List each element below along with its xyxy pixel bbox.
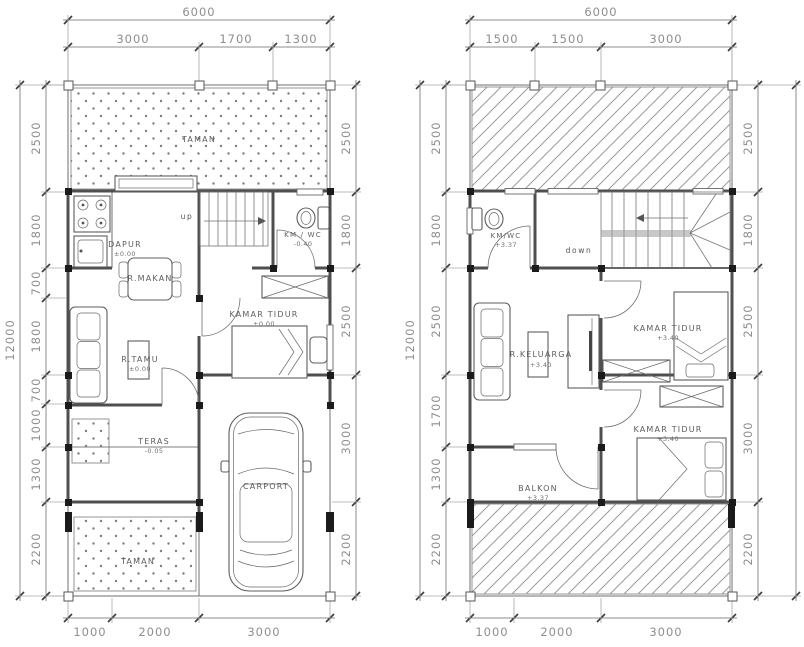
f1-wardrobe xyxy=(262,276,328,298)
f2-level-kmwc: +3.37 xyxy=(495,241,517,249)
f2-level-rkeluarga: +3.40 xyxy=(530,361,552,369)
floorplan-page: 6000 3000 1700 1300 12000 2500 1800 700 … xyxy=(0,0,804,647)
f2-dim-right-seg4: 2200 xyxy=(741,532,755,565)
f2-dim-top-seg0: 1500 xyxy=(485,32,518,46)
f2-bed-2 xyxy=(637,438,726,500)
f2-dim-bottom-seg0: 1000 xyxy=(475,625,508,639)
f1-stairs xyxy=(200,192,268,246)
f1-sofa xyxy=(70,307,107,403)
f2-dim-bottom-seg2: 3000 xyxy=(649,625,682,639)
f1-dim-right-seg2: 2500 xyxy=(339,304,353,337)
f2-closet xyxy=(568,315,599,388)
car-icon xyxy=(221,413,311,591)
f1-level-rtamu: ±0.00 xyxy=(129,365,151,373)
f1-dim-left-seg4: 700 xyxy=(29,378,43,403)
f1-dim-left-seg5: 1000 xyxy=(29,408,43,441)
f2-toilet-icon xyxy=(472,208,503,230)
f1-dim-right-seg3: 3000 xyxy=(339,421,353,454)
f2-dim-right-seg0: 2500 xyxy=(741,121,755,154)
f2-level-kamartidur2: +3.40 xyxy=(657,435,679,443)
f1-teras-planter xyxy=(72,419,109,463)
f2-level-balkon: +3.37 xyxy=(527,494,549,502)
f1-room-label-rtamu: R.TAMU xyxy=(121,355,159,364)
f1-kmwc-window xyxy=(297,189,323,195)
f2-room-label-kamartidur1: KAMAR TIDUR xyxy=(633,324,702,333)
f1-dim-left-seg1: 1800 xyxy=(29,213,43,246)
f1-room-label-taman-top: TAMAN xyxy=(181,135,216,144)
f2-roof-top-area xyxy=(472,87,730,190)
f1-room-label-kamartidur: KAMAR TIDUR xyxy=(229,310,298,319)
f2-window-2 xyxy=(548,189,598,195)
f2-stairs xyxy=(601,192,730,268)
f2-dim-right-seg3: 3000 xyxy=(741,421,755,454)
f1-dim-bottom-seg0: 1000 xyxy=(73,625,106,639)
f2-room-label-rkeluarga: R.KELUARGA xyxy=(510,350,573,359)
f1-dim-right-seg4: 2200 xyxy=(339,532,353,565)
f2-dim-left-seg4: 1300 xyxy=(429,457,443,490)
f1-dim-left-seg2: 700 xyxy=(29,271,43,296)
f2-dim-bottom-seg1: 2000 xyxy=(540,625,573,639)
f1-dim-bottom-seg2: 3000 xyxy=(247,625,280,639)
f2-window-3 xyxy=(693,189,723,195)
f2-stairs-arrow-icon xyxy=(636,214,644,222)
f2-wardrobe-1 xyxy=(603,360,670,382)
f1-dim-top-total: 6000 xyxy=(182,5,215,19)
f1-dim-top-seg0: 3000 xyxy=(116,32,149,46)
f1-taman-bottom-area xyxy=(74,517,196,591)
f2-dim-left-seg1: 1800 xyxy=(429,213,443,246)
f2-sofa xyxy=(474,303,510,400)
f2-dim-left-seg5: 2200 xyxy=(429,532,443,565)
f1-toilet-icon xyxy=(297,207,329,229)
f2-dim-left-seg0: 2500 xyxy=(429,121,443,154)
f1-level-kmwc: -0.40 xyxy=(294,240,313,248)
f1-dim-bottom-seg1: 2000 xyxy=(138,625,171,639)
f1-dim-right-seg0: 2500 xyxy=(339,121,353,154)
f2-room-label-kamartidur2: KAMAR TIDUR xyxy=(633,425,702,434)
f1-dim-left-seg7: 2200 xyxy=(29,532,43,565)
f1-dim-left-total: 12000 xyxy=(3,319,17,361)
f2-stairs-label: down xyxy=(566,246,593,255)
f1-bed xyxy=(232,326,327,378)
f1-stairs-label: up xyxy=(181,212,194,221)
f1-dim-top-seg2: 1300 xyxy=(284,32,317,46)
f1-dim-left-seg3: 1800 xyxy=(29,319,43,352)
f2-dim-right-seg2: 2500 xyxy=(741,304,755,337)
f2-dim-left-seg2: 2500 xyxy=(429,304,443,337)
floorplan-drawing: 6000 3000 1700 1300 12000 2500 1800 700 … xyxy=(0,0,804,647)
f1-dim-right-seg1: 1800 xyxy=(339,213,353,246)
f1-kitchen-fixtures xyxy=(74,196,110,267)
f2-dim-left-seg3: 1700 xyxy=(429,394,443,427)
f2-balkon-railing xyxy=(514,444,556,450)
f2-dim-top-total: 6000 xyxy=(584,5,617,19)
f2-dim-top-seg2: 3000 xyxy=(649,32,682,46)
f1-room-label-teras: TERAS xyxy=(137,437,170,446)
f2-wardrobe-2 xyxy=(660,386,723,407)
f1-level-dapur: ±0.00 xyxy=(114,250,136,258)
f2-room-label-balkon: BALKON xyxy=(518,484,558,493)
f2-window-1 xyxy=(505,189,535,195)
f1-dim-top-seg1: 1700 xyxy=(219,32,252,46)
f1-planter-box xyxy=(115,176,197,191)
f1-stairs-arrow-icon xyxy=(258,217,266,225)
floor2-plan: 6000 1500 1500 3000 12000 2500 1800 2500… xyxy=(403,5,801,639)
f1-dim-left-seg6: 1300 xyxy=(29,457,43,490)
floor1-plan: 6000 3000 1700 1300 12000 2500 1800 700 … xyxy=(3,5,361,639)
f1-room-label-rmakan: R.MAKAN xyxy=(127,274,172,283)
f2-dim-left-total: 12000 xyxy=(403,319,417,361)
f1-room-label-dapur: DAPUR xyxy=(108,240,142,249)
f1-level-teras: -0.05 xyxy=(145,447,164,455)
f2-bed-1 xyxy=(674,292,728,380)
f1-room-label-kmwc: KM / WC xyxy=(284,231,322,239)
f1-room-label-carport: CARPORT xyxy=(243,482,289,491)
f2-roof-bottom-area xyxy=(472,504,730,594)
f1-level-kamartidur: ±0.00 xyxy=(253,320,275,328)
f1-room-label-taman-bottom: TAMAN xyxy=(120,557,155,566)
f2-dim-top-seg1: 1500 xyxy=(551,32,584,46)
f1-bedroom-window xyxy=(327,325,333,370)
f2-level-kamartidur1: +3.40 xyxy=(657,334,679,342)
f2-dim-right-seg1: 1800 xyxy=(741,213,755,246)
f2-room-label-kmwc: KM/WC xyxy=(491,232,522,240)
f1-dim-left-seg0: 2500 xyxy=(29,121,43,154)
